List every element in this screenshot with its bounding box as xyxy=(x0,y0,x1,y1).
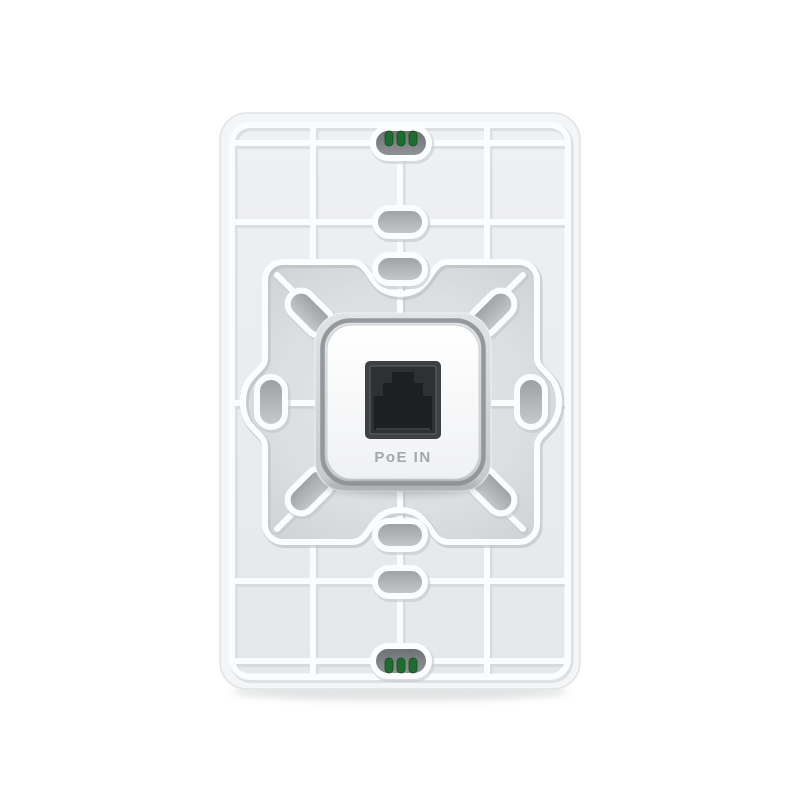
oval-cutout xyxy=(375,568,427,598)
connector-pins-top xyxy=(385,131,417,146)
oval-cutout xyxy=(375,255,427,285)
mount-tab-bottom xyxy=(373,646,431,678)
rj45-port xyxy=(365,361,441,439)
poe-in-label: PoE IN xyxy=(374,449,431,466)
connector-pins-bottom xyxy=(385,658,417,673)
mount-tab-top xyxy=(373,128,431,160)
photo-canvas: PoE IN xyxy=(0,0,800,800)
oval-cutout xyxy=(517,377,547,429)
oval-cutout xyxy=(257,377,287,429)
oval-cutout xyxy=(375,521,427,551)
access-point-rear-photo: PoE IN xyxy=(0,0,800,800)
oval-cutout xyxy=(375,208,427,238)
